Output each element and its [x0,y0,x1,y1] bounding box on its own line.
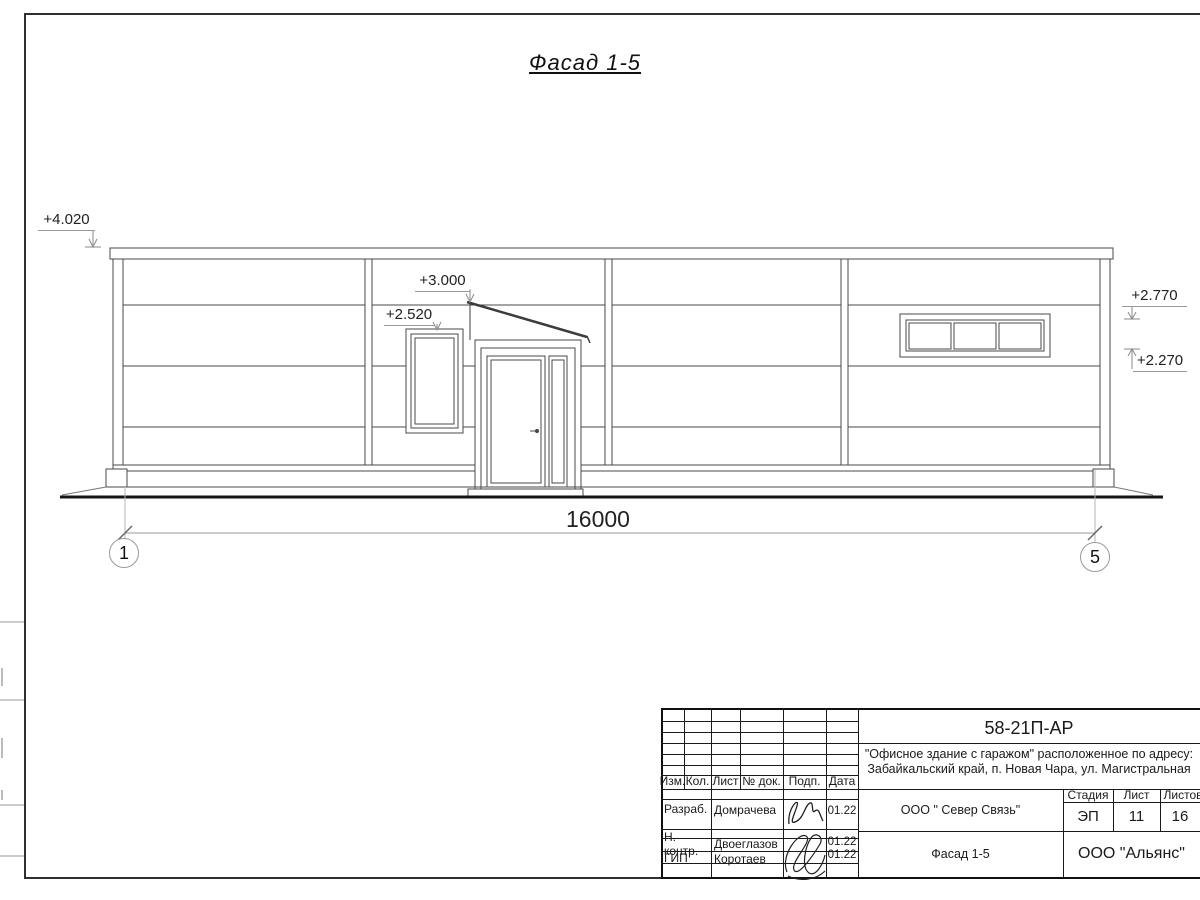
col-header-data: Дата [826,775,858,789]
doc-number: 58-21П-АР [858,716,1200,740]
titleblock-line [661,829,858,830]
sheet-title-cell: Фасад 1-5 [858,831,1063,877]
door-handle-knob [535,429,538,432]
col-header-izm: Изм. [661,775,684,789]
signer-name: Коротаев [714,853,782,867]
signer-date: 01.22 [826,836,858,850]
elevation-arrow-ribbon-top [1124,306,1140,319]
signer-date: 01.22 [826,805,858,819]
left-window [406,329,463,433]
col-header-list: Лист [711,775,740,789]
building [60,248,1163,497]
elevation-label-parapet: +4.020 [38,211,95,231]
col-header-podp: Подп. [783,775,826,789]
apron-slopes [62,487,1153,495]
sheets-total: 16 [1160,802,1200,831]
elevation-label-canopy: +3.000 [415,272,470,292]
company-name: ООО "Альянс" [1063,831,1200,877]
signature-scribble [780,826,828,882]
signer-date: 01.22 [826,849,858,863]
project-address-line2: Забайкальский край, п. Новая Чара, ул. М… [860,762,1198,777]
drawing-title: Фасад 1-5 [505,50,665,76]
titleblock-line [858,743,1200,744]
title-block: Изм. Кол. Лист № док. Подп. Дата Разраб.… [661,708,1200,879]
sheet-number: 11 [1113,802,1160,831]
titleblock-line [661,799,858,800]
plinth [106,469,1114,487]
signer-role: Разраб. [664,803,711,817]
titleblock-border [661,708,1200,710]
project-address-line1: "Офисное здание с гаражом" расположенное… [860,747,1198,762]
titleblock-border [661,708,663,879]
signer-name: Домрачева [714,804,782,818]
titleblock-border [661,877,1200,879]
titleblock-line [661,732,858,733]
titleblock-line [661,754,858,755]
signature-scribble [785,794,825,830]
elevation-label-ribbon-top: +2.770 [1122,287,1187,307]
entry-door [487,356,567,487]
signer-name: Двоеглазов [714,838,782,852]
ribbon-window [900,314,1050,357]
org-name: ООО " Север Связь" [858,789,1063,831]
stage-label: Стадия [1063,789,1113,802]
drawing-sheet: Фасад 1-5 +4.020 +3.000 +2.520 +2.770 +2… [0,0,1200,900]
elevation-label-ribbon-bottom: +2.270 [1133,352,1187,372]
elevation-arrow-parapet [85,230,101,247]
grid-axis-1: 1 [109,538,139,568]
col-header-kol: Кол. [684,775,711,789]
listov-label: Листов [1160,789,1200,802]
dimension-label: 16000 [548,506,648,533]
elevation-label-window-head: +2.520 [384,306,434,326]
left-margin-table [0,622,24,856]
titleblock-line [661,765,858,766]
signer-role: ГИП [664,852,711,866]
stage-value: ЭП [1063,802,1113,831]
list-label: Лист [1113,789,1160,802]
project-address: "Офисное здание с гаражом" расположенное… [860,747,1198,776]
signer-role: Н. контр. [664,838,711,852]
col-header-doc: № док. [740,775,783,789]
titleblock-line [661,721,858,722]
cornice [110,248,1113,259]
titleblock-line [661,743,858,744]
grid-axis-5: 5 [1080,542,1110,572]
